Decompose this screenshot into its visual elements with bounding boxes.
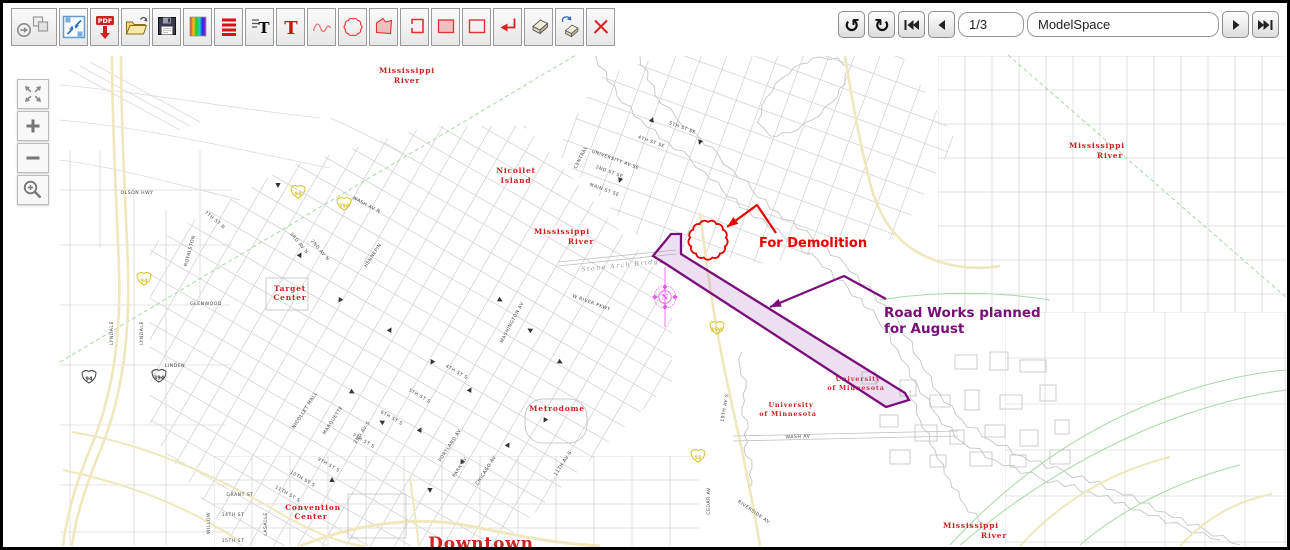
first-icon (903, 18, 920, 32)
svg-text:Mississippi: Mississippi (943, 521, 999, 530)
arrow-button[interactable] (493, 8, 522, 46)
red-T-icon: T (279, 14, 303, 40)
svg-text:↻: ↻ (874, 15, 890, 35)
redo-icon: ↻ (872, 15, 892, 35)
app-window: PDFTT ↺↻ 949439435W5539494NOLSON HWYGLEN… (0, 0, 1290, 550)
floppy-icon (155, 14, 179, 40)
fit-page-button[interactable] (59, 8, 88, 46)
svg-text:River: River (1097, 151, 1123, 160)
eraser-icon (527, 14, 551, 40)
freehand-button[interactable] (307, 8, 336, 46)
zoom-in-button[interactable] (17, 111, 49, 141)
svg-text:Mississippi: Mississippi (1069, 141, 1125, 150)
svg-text:PDF: PDF (97, 17, 112, 25)
svg-text:Mississippi: Mississippi (534, 227, 590, 236)
zminus-icon (22, 147, 44, 169)
delete-markup-button[interactable] (586, 8, 615, 46)
circle-arrow-pages-icon (15, 14, 53, 40)
fit-view-button[interactable] (17, 79, 49, 109)
svg-text:LYNDALE: LYNDALE (109, 321, 115, 345)
open-rect-icon (403, 14, 427, 40)
svg-text:94: 94 (294, 192, 302, 198)
svg-text:Metrodome: Metrodome (529, 404, 585, 413)
svg-text:University: University (768, 401, 813, 409)
nav-left-buttons: ↺↻ (838, 11, 955, 38)
svg-text:94: 94 (85, 377, 93, 383)
prev-page-button[interactable] (928, 11, 955, 38)
svg-text:T: T (258, 19, 270, 37)
svg-text:55: 55 (694, 456, 702, 462)
svg-text:Nicollet: Nicollet (496, 166, 536, 175)
svg-text:WASH AV: WASH AV (785, 434, 810, 441)
redo-button[interactable]: ↻ (868, 11, 895, 38)
map-canvas[interactable]: 949439435W5539494NOLSON HWYGLENWOODLINDE… (3, 53, 1287, 547)
map-background (3, 53, 1287, 547)
svg-text:35W: 35W (711, 328, 724, 334)
zoom-controls (17, 79, 49, 205)
nav-right-buttons (1222, 11, 1279, 38)
svg-text:GLENWOOD: GLENWOOD (190, 301, 222, 307)
svg-text:for August: for August (884, 321, 965, 337)
revision-cloud-button[interactable] (338, 8, 367, 46)
svg-text:Downtown: Downtown (428, 534, 534, 547)
svg-text:Target: Target (274, 284, 306, 293)
svg-text:Convention: Convention (285, 503, 341, 512)
svg-text:↺: ↺ (844, 15, 860, 35)
top-toolbar: PDFTT ↺↻ (3, 3, 1287, 53)
zoom-window-button[interactable] (17, 175, 49, 205)
open-copy-button[interactable] (11, 8, 57, 46)
save-button[interactable] (152, 8, 181, 46)
svg-text:LASALLE: LASALLE (263, 512, 269, 535)
svg-text:N: N (662, 293, 669, 302)
polyline-button[interactable] (400, 8, 429, 46)
text-style-button[interactable]: T (245, 8, 274, 46)
squiggle-icon (310, 14, 334, 40)
svg-text:Mississippi: Mississippi (379, 66, 435, 75)
zfit-icon (22, 83, 44, 105)
palette-icon (186, 14, 210, 40)
lines-T-icon: T (248, 14, 272, 40)
page-indicator-input[interactable] (958, 12, 1024, 37)
last-icon (1257, 18, 1274, 32)
outline-rect-icon (465, 14, 489, 40)
next-icon (1229, 18, 1243, 32)
svg-text:of Minnesota: of Minnesota (759, 410, 816, 418)
first-page-button[interactable] (898, 11, 925, 38)
polygon-markup-button[interactable] (369, 8, 398, 46)
roadworks-label: Road Works planned (884, 305, 1041, 321)
svg-text:Island: Island (501, 176, 532, 185)
eraser-arrow-icon (558, 14, 582, 40)
svg-text:14TH ST: 14TH ST (222, 512, 245, 518)
next-page-button[interactable] (1222, 11, 1249, 38)
folder-open-icon (124, 14, 148, 40)
last-page-button[interactable] (1252, 11, 1279, 38)
svg-text:LINDEN: LINDEN (165, 363, 185, 369)
markup-toolbar: PDFTT (11, 8, 615, 46)
eraser-button[interactable] (524, 8, 553, 46)
svg-text:T: T (284, 18, 298, 39)
page-navigation: ↺↻ (838, 11, 1279, 38)
filled-polygon-icon (372, 14, 396, 40)
text-button[interactable]: T (276, 8, 305, 46)
svg-text:LYNDALE: LYNDALE (139, 321, 145, 345)
zoom-out-button[interactable] (17, 143, 49, 173)
layers-button[interactable] (214, 8, 243, 46)
svg-text:394: 394 (339, 204, 350, 210)
fit-arrows-icon (62, 14, 86, 40)
map-viewport[interactable]: 949439435W5539494NOLSON HWYGLENWOODLINDE… (3, 53, 1287, 547)
open-file-button[interactable] (121, 8, 150, 46)
erase-markup-button[interactable] (555, 8, 584, 46)
undo-icon: ↺ (842, 15, 862, 35)
svg-text:15TH ST: 15TH ST (222, 538, 245, 544)
cloud-icon (341, 14, 365, 40)
svg-text:OLSON HWY: OLSON HWY (121, 190, 154, 196)
svg-text:River: River (394, 76, 420, 85)
red-x-icon (589, 14, 613, 40)
zlens-icon (21, 178, 45, 202)
demolition-label: For Demolition (759, 236, 867, 251)
svg-text:WILLOW: WILLOW (206, 512, 212, 534)
red-bars-icon (217, 14, 241, 40)
svg-text:GRANT ST: GRANT ST (226, 492, 253, 498)
svg-text:CEDAR AV: CEDAR AV (706, 487, 712, 515)
svg-text:River: River (981, 531, 1007, 540)
svg-text:Center: Center (273, 293, 306, 302)
undo-button[interactable]: ↺ (838, 11, 865, 38)
pdf-down-icon: PDF (93, 14, 117, 40)
corner-arrow-icon (496, 14, 520, 40)
svg-text:Center: Center (294, 512, 327, 521)
filled-rect-button[interactable] (431, 8, 460, 46)
svg-text:394: 394 (154, 376, 165, 382)
zplus-icon (22, 115, 44, 137)
rect-button[interactable] (462, 8, 491, 46)
svg-text:River: River (568, 237, 594, 246)
layout-space-input[interactable] (1027, 12, 1219, 37)
prev-icon (935, 18, 949, 32)
pdf-export-button[interactable]: PDF (90, 8, 119, 46)
color-palette-button[interactable] (183, 8, 212, 46)
svg-text:94: 94 (140, 279, 148, 285)
filled-rect-icon (434, 14, 458, 40)
